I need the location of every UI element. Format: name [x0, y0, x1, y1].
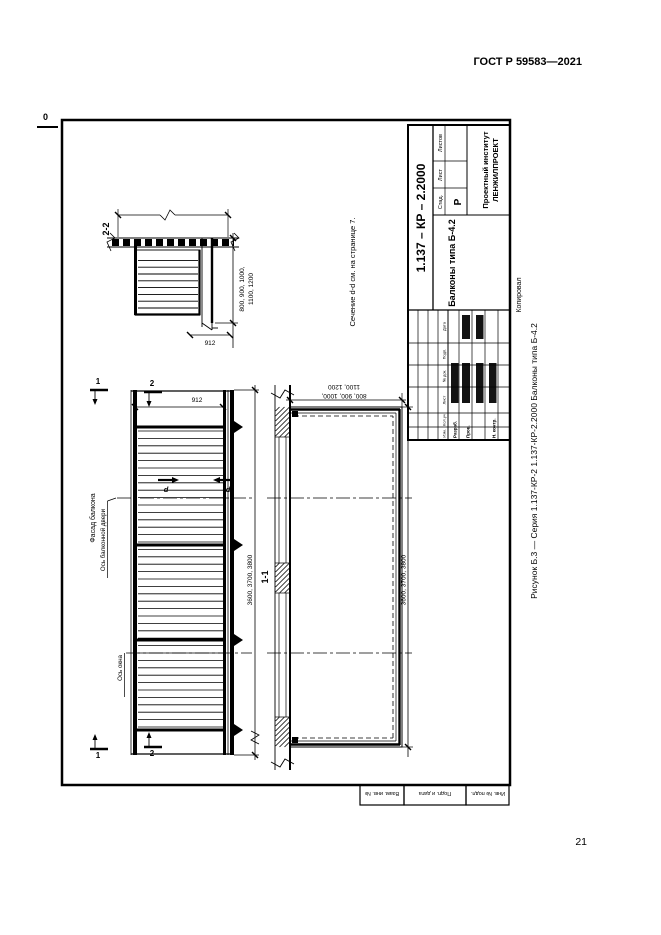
facade-balusters [138, 431, 223, 727]
plan-depth-dim-text: 1100, 1200 [328, 383, 360, 390]
stamp-col-header: Кол.уч [442, 414, 447, 426]
section-right-dim [115, 209, 231, 237]
section-view: 2-2 [101, 209, 255, 348]
plan-depth-dim-text: 800, 900, 1000, [321, 392, 366, 399]
title-block: Изм. Кол.уч Лист № док. Подп. Дата Разра… [408, 125, 510, 440]
stamp-row-label: Н. контр. [492, 418, 497, 438]
section-wall [107, 233, 239, 251]
margin-cell-label: Инв. № подл. [470, 790, 505, 796]
cut-marks-right: 1 2 [90, 377, 162, 407]
margin-cell-label: Подп. и дата [418, 790, 451, 796]
stamp-stage-label: Стад. [438, 194, 444, 209]
stamp-signature-ink [451, 315, 497, 403]
section-fence [135, 245, 200, 315]
facade-height-dim: 912 [132, 397, 226, 410]
section-height-dim-text: 912 [205, 340, 216, 347]
facade-length-dim-text: 3600, 3700, 3800 [247, 554, 254, 605]
door-axis-label: Ось балконной двери [100, 508, 107, 571]
cut-marks-left: 1 2 [90, 732, 162, 760]
wall-pier-hatch [276, 563, 290, 593]
plan-slab [290, 407, 402, 747]
sheet-corner-mark: 0 [43, 112, 48, 122]
stamp-org-name: ЛЕНЖИЛПРОЕКТ [491, 138, 500, 202]
section-d-label: d [164, 485, 169, 494]
stamp-col-header: Дата [442, 321, 447, 331]
section-height-dim: 912 [187, 332, 233, 347]
cut-label-1: 1 [96, 751, 101, 760]
section-slab [202, 238, 218, 330]
wall-pier-hatch [276, 407, 290, 437]
drawing-canvas: Взам. инв. № Подп. и дата Инв. № подл. Ф… [57, 105, 527, 810]
stamp-sheets-label: Листов [438, 134, 444, 152]
cut-label-2: 2 [150, 749, 155, 758]
stamp-col-header: Лист [442, 395, 447, 404]
cut-label-2: 2 [150, 379, 155, 388]
facade-title: Фасад балкона [89, 493, 97, 542]
section-d-marks: d d [158, 477, 234, 494]
facade-view: Фасад балкона Ось балконной двери Ось ок… [89, 377, 259, 760]
section-d-label: d [226, 485, 231, 494]
standard-code: ГОСТ Р 59583—2021 [0, 56, 582, 68]
page-number: 21 [575, 836, 587, 848]
stamp-col-header: Изм. [442, 429, 447, 438]
section-width-dim-text: 1100, 1200 [248, 273, 255, 305]
stamp-row-label: Пров. [466, 425, 471, 438]
facade-slab [223, 390, 243, 755]
stamp-col-header: № док. [442, 370, 447, 383]
figure-caption: Рисунок Б.3 — Серия 1.137-КР-2 1.137-КР-… [529, 280, 539, 642]
margin-cell-label: Взам. инв. № [365, 790, 399, 796]
stamp-doc-title: Балконы типа Б-4.2 [447, 219, 457, 307]
stamp-stage-value: Р [453, 198, 464, 205]
plan-length-dim-text: 3600, 3700, 3800 [401, 554, 408, 605]
facade-height-dim-text: 912 [192, 397, 203, 404]
stamp-designation: 1.137 – КР – 2.2000 [414, 163, 428, 272]
stamp-org-name: Проектный институт [481, 131, 490, 208]
section-note: Сечение d-d см. на странице 7. [348, 218, 357, 327]
sheet-corner-tick [37, 126, 58, 128]
plan-depth-dim: 800, 900, 1000, 1100, 1200 [286, 383, 406, 407]
section-width-dim-text: 800, 900, 1000, [239, 266, 246, 311]
wall-pier-hatch [276, 717, 290, 747]
stamp-col-header: Подп. [442, 349, 447, 360]
drawing-sheet: Взам. инв. № Подп. и дата Инв. № подл. Ф… [57, 105, 527, 810]
plan-title: 1-1 [260, 570, 270, 583]
cut-label-1: 1 [96, 377, 101, 386]
window-axis-label: Ось окна [117, 654, 124, 680]
facade-length-dim: 3600, 3700, 3800 [234, 385, 259, 760]
stamp-row-label: Разраб. [452, 421, 458, 438]
section-title: 2-2 [101, 222, 111, 235]
stamp-sheet-label: Лист [438, 169, 444, 181]
margin-attribute-cells: Взам. инв. № Подп. и дата Инв. № подл. [360, 785, 509, 805]
copied-label: Копировал [516, 277, 523, 312]
plan-view: 1-1 [260, 383, 413, 770]
